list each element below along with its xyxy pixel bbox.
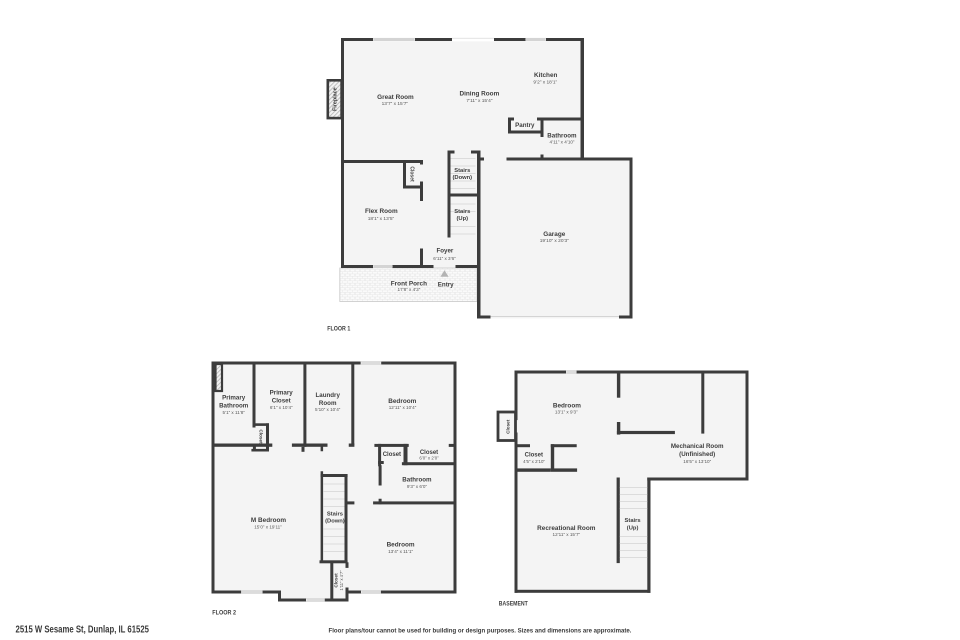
svg-text:Stairs: Stairs bbox=[454, 209, 470, 215]
svg-text:Bedroom: Bedroom bbox=[388, 398, 416, 405]
svg-text:4’11” x 4’10”: 4’11” x 4’10” bbox=[550, 140, 575, 145]
svg-text:Closet: Closet bbox=[505, 419, 510, 434]
svg-text:1’11” x 4’7”: 1’11” x 4’7” bbox=[339, 570, 344, 591]
svg-text:9’3” x 6’0”: 9’3” x 6’0” bbox=[407, 484, 428, 489]
svg-text:13’7” x 15’7”: 13’7” x 15’7” bbox=[382, 101, 409, 107]
svg-text:Bathroom: Bathroom bbox=[547, 132, 577, 139]
svg-text:Pantry: Pantry bbox=[515, 122, 535, 129]
svg-text:Room: Room bbox=[319, 400, 337, 407]
svg-text:13’1” x 9’3”: 13’1” x 9’3” bbox=[555, 410, 578, 415]
svg-text:(Unfinished): (Unfinished) bbox=[679, 451, 715, 458]
svg-text:15’0” x 19’11”: 15’0” x 19’11” bbox=[254, 524, 282, 529]
svg-text:Closet: Closet bbox=[525, 453, 543, 459]
svg-text:FLOOR 1: FLOOR 1 bbox=[327, 326, 350, 333]
svg-text:16’5” x 13’10”: 16’5” x 13’10” bbox=[683, 459, 711, 464]
svg-text:BASEMENT: BASEMENT bbox=[499, 601, 528, 608]
svg-text:Kitchen: Kitchen bbox=[534, 72, 558, 79]
svg-text:Laundry: Laundry bbox=[315, 392, 340, 399]
svg-text:Flex Room: Flex Room bbox=[365, 208, 398, 215]
svg-text:Bedroom: Bedroom bbox=[387, 542, 415, 549]
svg-text:17’8” x 4’3”: 17’8” x 4’3” bbox=[398, 287, 421, 292]
svg-text:Primary: Primary bbox=[270, 390, 294, 397]
svg-text:Bathroom: Bathroom bbox=[402, 477, 432, 484]
svg-text:18’1” x 13’5”: 18’1” x 13’5” bbox=[368, 216, 395, 222]
svg-text:Fireplace: Fireplace bbox=[333, 87, 339, 111]
svg-text:13’4” x 11’1”: 13’4” x 11’1” bbox=[388, 549, 413, 554]
svg-text:FLOOR 2: FLOOR 2 bbox=[212, 610, 236, 617]
svg-text:2515 W Sesame St, Dunlap, IL 6: 2515 W Sesame St, Dunlap, IL 61525 bbox=[16, 624, 150, 635]
svg-text:(Up): (Up) bbox=[457, 216, 469, 222]
svg-text:Dining Room: Dining Room bbox=[460, 91, 500, 98]
svg-text:Floor plans/tour cannot be use: Floor plans/tour cannot be used for buil… bbox=[329, 627, 632, 634]
svg-text:Mechanical Room: Mechanical Room bbox=[671, 443, 724, 450]
svg-text:Bedroom: Bedroom bbox=[553, 403, 581, 410]
svg-text:Closet: Closet bbox=[409, 166, 415, 182]
svg-text:Closet: Closet bbox=[272, 398, 291, 405]
svg-text:Recreational Room: Recreational Room bbox=[537, 525, 596, 532]
svg-text:Garage: Garage bbox=[543, 231, 565, 238]
svg-text:9’2” x 18’1”: 9’2” x 18’1” bbox=[533, 79, 557, 85]
svg-text:5’10” x 10’4”: 5’10” x 10’4” bbox=[315, 407, 341, 412]
svg-text:12’11” x 15’7”: 12’11” x 15’7” bbox=[553, 532, 581, 537]
svg-text:Stairs: Stairs bbox=[454, 168, 470, 174]
svg-text:5’1” x 11’8”: 5’1” x 11’8” bbox=[223, 410, 246, 415]
svg-text:M Bedroom: M Bedroom bbox=[251, 517, 286, 524]
svg-text:6’11” x 3’6”: 6’11” x 3’6” bbox=[433, 256, 456, 261]
svg-text:Closet: Closet bbox=[333, 573, 338, 588]
svg-text:12’11” x 10’4”: 12’11” x 10’4” bbox=[389, 405, 417, 410]
svg-text:6’1” x 10’4”: 6’1” x 10’4” bbox=[270, 405, 293, 410]
svg-text:(Down): (Down) bbox=[452, 175, 472, 181]
svg-text:Closet: Closet bbox=[383, 452, 401, 458]
svg-text:Bathroom: Bathroom bbox=[219, 403, 249, 410]
svg-text:Closet: Closet bbox=[259, 429, 264, 444]
svg-text:Stairs: Stairs bbox=[625, 518, 641, 524]
svg-text:7’11” x 15’4”: 7’11” x 15’4” bbox=[466, 98, 492, 104]
svg-text:Primary: Primary bbox=[222, 395, 246, 402]
svg-text:19’10” x 20’3”: 19’10” x 20’3” bbox=[540, 238, 569, 244]
svg-text:Great Room: Great Room bbox=[377, 94, 414, 101]
svg-text:Entry: Entry bbox=[438, 282, 454, 289]
svg-text:Stairs: Stairs bbox=[327, 512, 343, 518]
svg-text:6’0” x 2’0”: 6’0” x 2’0” bbox=[419, 456, 439, 461]
svg-text:(Up): (Up) bbox=[627, 525, 639, 531]
svg-text:(Down): (Down) bbox=[325, 519, 345, 525]
svg-text:Foyer: Foyer bbox=[436, 248, 453, 255]
svg-text:4’5” x 2’10”: 4’5” x 2’10” bbox=[523, 459, 545, 464]
